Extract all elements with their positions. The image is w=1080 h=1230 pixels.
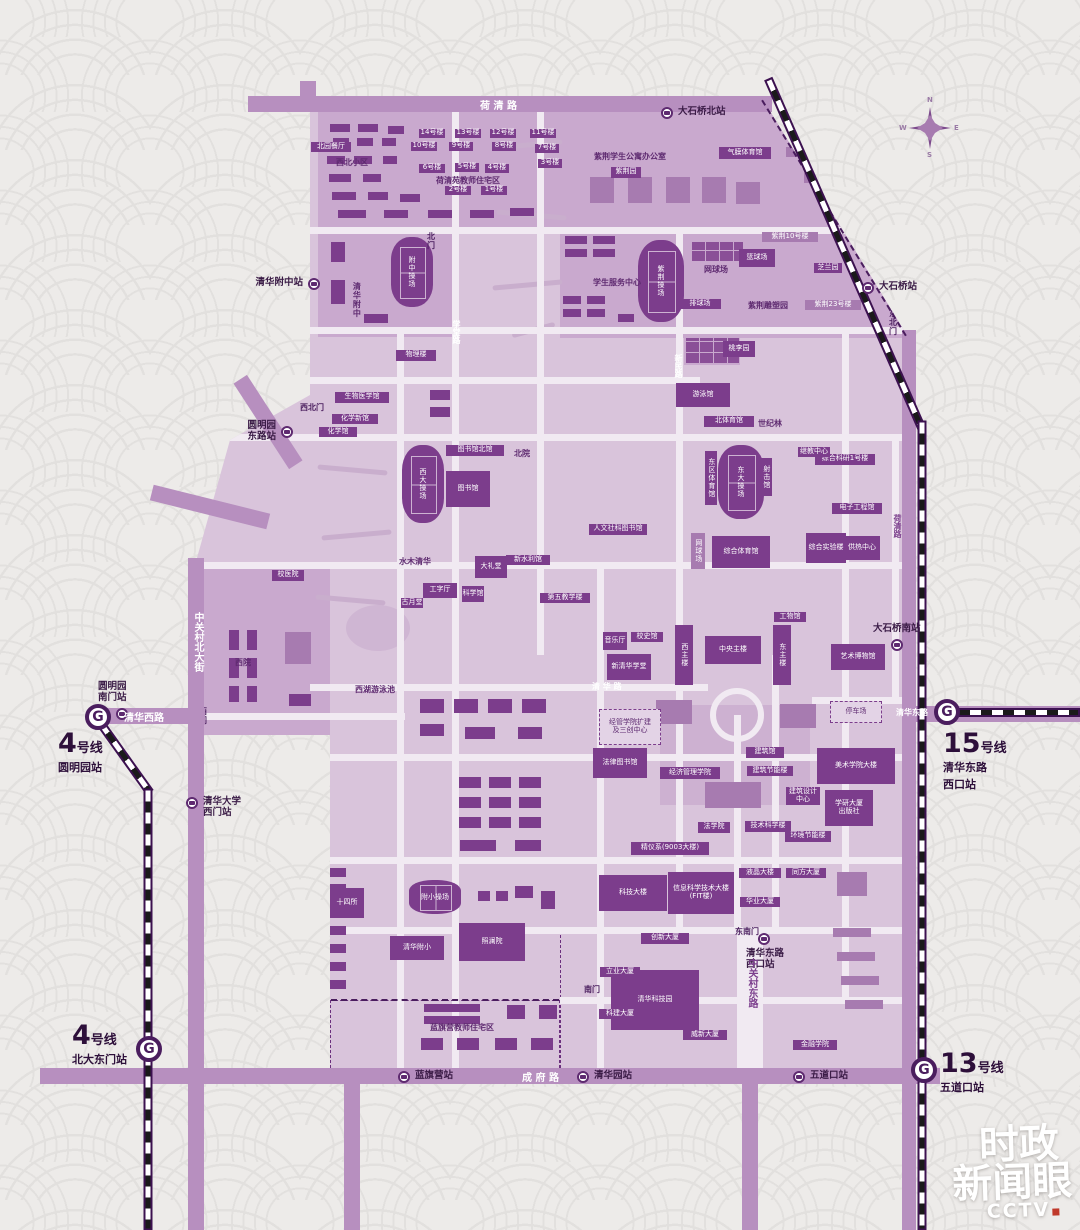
- building-label: 射击馆: [762, 465, 770, 489]
- building-label: 2号楼: [449, 186, 467, 194]
- metro-station-icon: G: [136, 1036, 162, 1062]
- campus-road: [195, 713, 405, 720]
- building-label: 音乐厅: [605, 637, 626, 645]
- building: 6号楼: [419, 164, 445, 173]
- building-label: 图书馆北馆: [458, 446, 493, 454]
- building-block: [518, 727, 542, 739]
- building-label: 校医院: [278, 571, 299, 579]
- building-block: [705, 782, 761, 808]
- building-block: [590, 177, 614, 203]
- building-label: 8号楼: [495, 142, 513, 150]
- building-label: 华业大厦: [746, 898, 774, 906]
- building-block: [736, 182, 760, 204]
- bus-station-icon: [661, 107, 673, 119]
- building-label: 继教中心: [800, 448, 828, 456]
- building-label: 清华附中: [352, 282, 361, 318]
- stadium-label: 附小操场: [421, 892, 449, 902]
- road-label: 成 府 路: [522, 1069, 559, 1084]
- building-block: [496, 891, 508, 901]
- building-block: [666, 177, 690, 203]
- building-label: 法律图书馆: [603, 759, 638, 767]
- compass-rose-icon: N E S W: [907, 105, 953, 155]
- building-label: 网球场: [704, 266, 728, 275]
- building-label: 桃李园: [729, 345, 750, 353]
- building-label: 生物医学馆: [345, 393, 380, 401]
- gate-label: 北门: [416, 228, 446, 254]
- building: 气膜体育馆: [719, 147, 771, 159]
- building-label: 同方大厦: [792, 869, 820, 877]
- building-block: [489, 797, 511, 808]
- building-block: [489, 777, 511, 788]
- line-number: 13: [940, 1048, 978, 1079]
- building-label: 工字厅: [430, 586, 451, 594]
- building-label: 紫荆10号楼: [772, 233, 809, 241]
- building: 12号楼: [490, 129, 516, 138]
- road-label: 中关村北大街: [190, 612, 205, 672]
- bus-station-icon: [793, 1071, 805, 1083]
- building: 10号楼: [411, 142, 437, 151]
- line-number: 4: [72, 1020, 91, 1051]
- building-block: [563, 296, 581, 304]
- campus-map: 紫荆操场西大操场东大操场附中操场附小操场 西北小区荷清苑教师住宅区北园餐厅14号…: [0, 0, 1080, 1230]
- building-label: 液晶大楼: [746, 869, 774, 877]
- building: 照澜院: [459, 923, 525, 961]
- building-block: [357, 138, 373, 146]
- building-block: [331, 280, 345, 304]
- building-label: 校史馆: [637, 633, 658, 641]
- building-block: [330, 944, 346, 953]
- building: 西院: [238, 658, 248, 668]
- building-block: [459, 797, 481, 808]
- building-label: 电子工程馆: [840, 504, 875, 512]
- building-block: [833, 928, 871, 937]
- building: 桃李园: [723, 341, 755, 357]
- building-label: 信息科学技术大楼(FIT楼): [673, 885, 729, 900]
- building-label: 紫荆园: [616, 168, 637, 176]
- building-block: [428, 210, 452, 218]
- bus-station-label: 圆明园南门站: [98, 682, 127, 704]
- building-block: [229, 686, 239, 702]
- building-block: [587, 296, 605, 304]
- building-label: 世纪林: [758, 420, 782, 429]
- building-block: [330, 868, 346, 877]
- building-label: 建筑节能楼: [753, 767, 788, 775]
- road: [902, 330, 916, 1230]
- building-block: [363, 174, 381, 182]
- building: 科建大厦: [599, 1009, 641, 1019]
- campus-road: [195, 562, 908, 569]
- building: 射击馆: [761, 458, 772, 496]
- campus-road: [397, 330, 404, 1078]
- building-label: 排球场: [690, 300, 711, 308]
- building-label: 图书馆: [458, 485, 479, 493]
- building: 网球场: [711, 265, 721, 275]
- building: 新清华学堂: [607, 654, 651, 680]
- building: 美术学院大楼: [817, 748, 895, 784]
- bus-station-label: 大石桥站: [879, 282, 917, 293]
- building: 化学馆: [319, 427, 357, 437]
- bus-station-label: 五道口站: [810, 1071, 848, 1082]
- building-label: 紫荆学生公寓办公室: [594, 153, 666, 162]
- building: 2号楼: [445, 186, 471, 195]
- building-label: 12号楼: [492, 129, 515, 137]
- building-block: [331, 242, 345, 262]
- building: 威新大厦: [683, 1030, 727, 1040]
- compass-e: E: [954, 124, 959, 132]
- building: 排球场: [679, 299, 721, 309]
- bus-station-label: 清华附中站: [255, 278, 303, 289]
- building-label: 中央主楼: [719, 646, 747, 654]
- stadium: 东大操场: [718, 445, 764, 519]
- compass-s: S: [927, 151, 932, 159]
- building: 13号楼: [455, 129, 481, 138]
- building: 工字厅: [423, 583, 457, 598]
- building-label: 综合实验楼: [809, 544, 844, 552]
- building: 停车场: [830, 701, 882, 723]
- station-name: 清华东路西口站: [943, 761, 987, 791]
- building-label: 经济管理学院: [669, 769, 711, 777]
- building-label: 美术学院大楼: [835, 762, 877, 770]
- building-block: [424, 1004, 480, 1012]
- building: 14号楼: [419, 129, 445, 138]
- gate-name: 北门: [426, 232, 437, 250]
- building-label: 清华附小: [403, 944, 431, 952]
- building: 9号楼: [449, 142, 473, 151]
- building: 清华附小: [390, 936, 444, 960]
- metro-rail-line: [918, 420, 927, 1230]
- bus-station-label: 大石桥南站: [873, 624, 921, 635]
- building-block: [618, 314, 634, 322]
- building-block: [507, 1005, 525, 1019]
- building-block: [430, 407, 450, 417]
- building-block: [515, 840, 541, 851]
- building-block: [470, 210, 494, 218]
- campus-boundary-dash: [331, 999, 559, 1001]
- building: 科学馆: [462, 586, 484, 602]
- building-label: 紫荆23号楼: [815, 301, 852, 309]
- building-block: [656, 700, 692, 724]
- building: 北体育馆: [704, 416, 754, 427]
- building-block: [519, 817, 541, 828]
- building-block: [519, 797, 541, 808]
- building-block: [495, 1038, 517, 1050]
- building-label: 精仪系(9003大楼): [641, 844, 699, 852]
- building: 紫荆23号楼: [805, 300, 861, 310]
- building-label: 3号楼: [541, 159, 559, 167]
- stadium: 紫荆操场: [638, 240, 684, 322]
- building: 综合实验楼: [806, 533, 846, 563]
- building-block: [247, 686, 257, 702]
- building: 北院: [517, 449, 527, 459]
- building: 科技大楼: [599, 875, 667, 911]
- building: 电子工程馆: [832, 503, 882, 514]
- building-label: 4号楼: [488, 164, 506, 172]
- bus-station-icon: [577, 1071, 589, 1083]
- building: 化学新馆: [332, 414, 378, 424]
- building-label: 学研大厦出版社: [835, 800, 863, 815]
- building-label: 大礼堂: [481, 563, 502, 571]
- building-block: [593, 249, 615, 257]
- building-block: [565, 236, 587, 244]
- building-block: [388, 126, 404, 134]
- building-block: [515, 886, 533, 898]
- building-label: 西北小区: [336, 159, 368, 168]
- gate-name: 西北门: [300, 402, 324, 413]
- building: 中央主楼: [705, 636, 761, 664]
- campus-road: [310, 327, 908, 334]
- building: 1号楼: [481, 186, 507, 195]
- metro-rail-line: [144, 788, 153, 1230]
- building-label: 13号楼: [457, 129, 480, 137]
- gate-name: 东南门: [735, 926, 759, 937]
- building-block: [364, 314, 388, 323]
- campus-road: [676, 230, 683, 930]
- building: 供热中心: [844, 536, 880, 560]
- building-label: 人文社科图书馆: [594, 525, 643, 533]
- building: 经管学院扩建及三创中心: [599, 709, 661, 745]
- building: 网球场: [691, 533, 705, 569]
- building: 西湖游泳池: [370, 685, 380, 695]
- building-block: [510, 208, 534, 216]
- building: 综合体育馆: [712, 536, 770, 568]
- building: 建筑设计中心: [786, 787, 820, 805]
- building-block: [702, 177, 726, 203]
- road: [40, 1068, 940, 1084]
- building-block: [420, 724, 444, 736]
- building-block: [330, 124, 350, 132]
- stadium-label: 紫荆操场: [656, 265, 666, 297]
- building-label: 气膜体育馆: [728, 149, 763, 157]
- rail-dashes: [920, 422, 925, 1228]
- building-block: [587, 309, 605, 317]
- building-block: [522, 699, 546, 713]
- watermark-line2: 新闻眼: [952, 1162, 1073, 1204]
- building-block: [368, 192, 388, 200]
- bus-station-icon: [186, 797, 198, 809]
- building-block: [563, 309, 581, 317]
- building: 11号楼: [530, 129, 556, 138]
- building-label: 科技大楼: [619, 889, 647, 897]
- building-label: 照澜院: [482, 938, 503, 946]
- building-label: 物理楼: [406, 351, 427, 359]
- road-label: 清华西路: [124, 709, 164, 724]
- building: 学生服务中心: [612, 278, 622, 288]
- stadium: 西大操场: [402, 445, 444, 523]
- building: 金融学院: [793, 1040, 837, 1050]
- building-label: 水木清华: [399, 558, 431, 567]
- plaza-circle: [710, 688, 764, 742]
- building: 华业大厦: [740, 897, 780, 907]
- building-block: [489, 817, 511, 828]
- road-label: 荷 清 路: [480, 97, 517, 112]
- building: 东区体育馆: [705, 451, 717, 505]
- building-label: 5号楼: [458, 163, 476, 171]
- metro-rail-line: [946, 708, 1080, 717]
- building-label: 东主楼: [778, 643, 786, 667]
- bus-station-label: 清华大学西门站: [203, 797, 241, 819]
- building-label: 法学院: [704, 823, 725, 831]
- building: 3号楼: [538, 159, 562, 168]
- bus-station-icon: [398, 1071, 410, 1083]
- building: 生物医学馆: [335, 392, 389, 403]
- building: 紫荆园: [611, 167, 641, 178]
- building-block: [780, 704, 816, 728]
- metro-line-label: 4号线圆明园站: [58, 730, 103, 775]
- bus-station-label: 圆明园东路站: [247, 421, 276, 443]
- building-block: [330, 926, 346, 935]
- rail-dashes: [948, 710, 1078, 715]
- building-label: 环境节能楼: [791, 832, 826, 840]
- metro-rail-line: [96, 719, 153, 794]
- building-block: [465, 727, 495, 739]
- building-block: [332, 192, 356, 200]
- building: 第五教学楼: [540, 593, 590, 603]
- building-label: 6号楼: [423, 164, 441, 172]
- campus-road: [195, 434, 908, 441]
- road-label: 学堂路: [451, 320, 462, 344]
- building-block: [459, 777, 481, 788]
- line-number: 4: [58, 728, 77, 759]
- metro-station-icon: G: [911, 1057, 937, 1083]
- building: 建筑馆: [746, 747, 784, 758]
- building-label: 经管学院扩建及三创中心: [609, 719, 651, 734]
- building-label: 北园餐厅: [317, 143, 345, 151]
- stadium: 附小操场: [409, 880, 461, 914]
- building: 建筑节能楼: [747, 766, 793, 776]
- building-block: [247, 630, 257, 650]
- bus-station-icon: [891, 639, 903, 651]
- road-label: 中关村东路: [744, 958, 759, 1008]
- station-name: 北大东门站: [72, 1053, 127, 1066]
- road: [742, 1078, 758, 1230]
- bus-station-label: 蓝旗营站: [415, 1071, 453, 1082]
- building-block: [383, 156, 397, 164]
- building: 信息科学技术大楼(FIT楼): [668, 872, 734, 914]
- bus-station-icon: [758, 933, 770, 945]
- building-label: 篮球场: [747, 254, 768, 262]
- building: 工物馆: [774, 612, 806, 622]
- building: 图书馆: [446, 471, 490, 507]
- building: 法学院: [698, 822, 730, 833]
- building: 液晶大楼: [739, 868, 781, 878]
- building: 4号楼: [485, 164, 509, 173]
- building: 西北小区: [347, 158, 357, 168]
- building: 校史馆: [631, 632, 663, 642]
- compass-w: W: [899, 124, 907, 132]
- road-label: 新民路: [673, 354, 684, 378]
- building: 继教中心: [798, 447, 830, 457]
- building-block: [845, 1000, 883, 1009]
- building-label: 化学新馆: [341, 415, 369, 423]
- building-label: 创新大厦: [651, 934, 679, 942]
- building-label: 北体育馆: [715, 417, 743, 425]
- road: [300, 81, 316, 97]
- building: 经济管理学院: [660, 767, 720, 779]
- building-label: 紫荆雕塑园: [748, 302, 788, 311]
- building-label: 西院: [235, 659, 251, 668]
- building-label: 化学馆: [328, 428, 349, 436]
- building-label: 东区体育馆: [707, 458, 715, 498]
- building-block: [454, 699, 478, 713]
- building-label: 清华科技园: [638, 996, 673, 1004]
- building-label: 供热中心: [848, 544, 876, 552]
- building-block: [358, 124, 378, 132]
- building-label: 9号楼: [452, 142, 470, 150]
- bus-station-icon: [281, 426, 293, 438]
- building: 法律图书馆: [593, 748, 647, 778]
- building: 古月堂: [401, 598, 423, 608]
- gate-label: 西北门: [297, 394, 327, 420]
- building-block: [519, 777, 541, 788]
- building: 物理楼: [396, 350, 436, 361]
- building-block: [285, 632, 311, 664]
- building: 艺术博物馆: [831, 644, 885, 670]
- building: 十四所: [330, 888, 364, 918]
- building: 人文社科图书馆: [589, 524, 647, 535]
- building-label: 新水利馆: [514, 556, 542, 564]
- building: 蓝旗营教师住宅区: [457, 1023, 467, 1033]
- building-label: 西湖游泳池: [355, 686, 395, 695]
- stadium-label: 东大操场: [736, 466, 746, 498]
- building-label: 学生服务中心: [593, 279, 641, 288]
- metro-station-icon: G: [85, 704, 111, 730]
- building-label: 芝兰园: [818, 264, 839, 272]
- building-label: 技术科学楼: [751, 822, 786, 830]
- road-label: 清华东路: [896, 707, 928, 718]
- building-label: 建筑馆: [755, 748, 776, 756]
- line-number: 15: [943, 728, 981, 759]
- building-block: [338, 210, 366, 218]
- building-block: [459, 817, 481, 828]
- building-block: [289, 694, 311, 706]
- building-block: [837, 872, 867, 896]
- rail-dashes: [99, 722, 151, 792]
- building-label: 1号楼: [485, 186, 503, 194]
- building: 西主楼: [675, 625, 693, 685]
- building: 5号楼: [455, 163, 479, 172]
- building-label: 新清华学堂: [612, 663, 647, 671]
- campus-road: [310, 377, 700, 384]
- building-label: 停车场: [846, 708, 867, 716]
- building-block: [841, 976, 879, 985]
- building: 清华科技园: [611, 970, 699, 1030]
- building-label: 10号楼: [413, 142, 436, 150]
- building-block: [541, 891, 555, 909]
- building: 音乐厅: [603, 632, 627, 650]
- building: 水木清华: [410, 557, 420, 567]
- building-block: [531, 1038, 553, 1050]
- building-label: 建筑设计中心: [789, 788, 817, 803]
- building-block: [457, 1038, 479, 1050]
- building: 东主楼: [773, 625, 791, 685]
- building: 图书馆北馆: [446, 445, 504, 456]
- building-label: 14号楼: [421, 129, 444, 137]
- building: 紫荆学生公寓办公室: [625, 152, 635, 162]
- building: 大礼堂: [475, 556, 507, 578]
- building-label: 北院: [514, 450, 530, 459]
- building-block: [565, 249, 587, 257]
- bus-station-label: 大石桥北站: [678, 107, 726, 118]
- building: 新水利馆: [506, 555, 550, 565]
- building: 8号楼: [492, 142, 516, 151]
- watermark: 时政 新闻眼 CCTV: [950, 1124, 1073, 1222]
- building: 游泳馆: [676, 383, 730, 407]
- compass-n: N: [927, 96, 933, 104]
- cctv-red-square: [1052, 1208, 1059, 1215]
- metro-line-label: 4号线北大东门站: [72, 1022, 127, 1067]
- building-block: [330, 980, 346, 989]
- building: 同方大厦: [786, 868, 826, 878]
